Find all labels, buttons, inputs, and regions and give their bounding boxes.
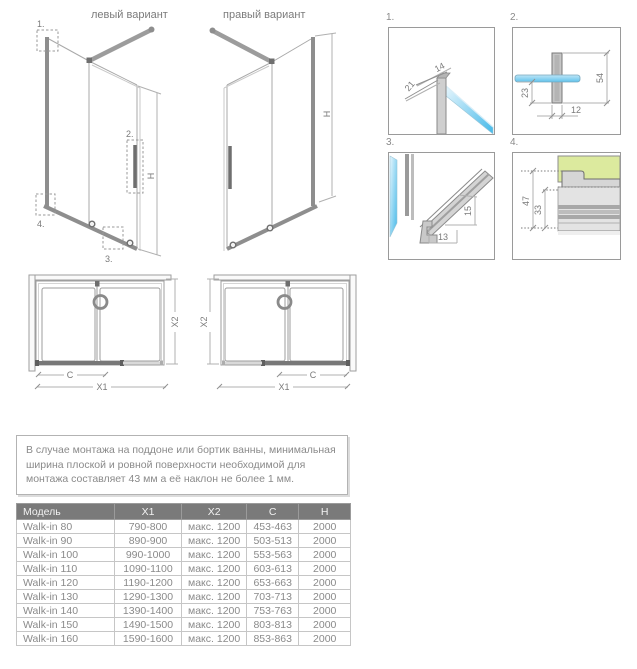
cell-c: 653-663 (247, 576, 299, 590)
dim-47-label: 47 (521, 196, 531, 206)
x1-dim-label: X1 (96, 382, 107, 392)
dim-x1: X1 (35, 382, 168, 392)
roller (267, 225, 273, 231)
detail-4-box: 47 33 (512, 152, 621, 260)
cell-model: Walk-in 160 (17, 632, 115, 646)
col-header-x1: X1 (115, 504, 182, 520)
cell-h: 2000 (299, 590, 351, 604)
detail-2-label: 2. (510, 12, 518, 23)
detail-4-label: 4. (510, 137, 518, 148)
dim-33-label: 33 (533, 205, 543, 215)
dim-54-label: 54 (595, 73, 605, 83)
dim-12: 12 (537, 105, 581, 119)
wall-strip (405, 154, 409, 216)
glass-unit (36, 281, 164, 365)
c-dim-label: C (310, 370, 317, 380)
detail-4-drawing: 47 33 (513, 153, 620, 259)
detail-1-drawing: 14 21 (389, 28, 494, 134)
detail-1-box: 14 21 (388, 27, 495, 135)
detail-1-label: 1. (386, 12, 394, 23)
cell-c: 503-513 (247, 534, 299, 548)
table-row: Walk-in 140 1390-1400 макс. 1200 753-763… (17, 604, 351, 618)
cell-model: Walk-in 150 (17, 618, 115, 632)
h-dim-label: H (146, 173, 156, 180)
cell-model: Walk-in 100 (17, 548, 115, 562)
cell-x2: макс. 1200 (182, 520, 247, 534)
detail-3-drawing: 15 13 (389, 153, 494, 259)
cell-x2: макс. 1200 (182, 618, 247, 632)
cell-x2: макс. 1200 (182, 590, 247, 604)
detail-3-label: 3. (386, 137, 394, 148)
dim-21-label: 21 (403, 79, 417, 93)
dim-x2: X2 (199, 279, 219, 364)
left-variant-glass (49, 39, 140, 251)
cell-model: Walk-in 90 (17, 534, 115, 548)
cell-x2: макс. 1200 (182, 534, 247, 548)
cell-c: 703-713 (247, 590, 299, 604)
callout-2-label: 2. (126, 129, 134, 139)
glass-unit (221, 281, 349, 365)
cell-x2: макс. 1200 (182, 604, 247, 618)
cell-h: 2000 (299, 520, 351, 534)
plan-view-left: C X1 X2 (25, 274, 190, 392)
dim-c: C (277, 370, 349, 380)
cell-h: 2000 (299, 604, 351, 618)
table-row: Walk-in 150 1490-1500 макс. 1200 803-813… (17, 618, 351, 632)
cell-model: Walk-in 110 (17, 562, 115, 576)
cell-model: Walk-in 130 (17, 590, 115, 604)
cell-x1: 1590-1600 (115, 632, 182, 646)
cell-x1: 790-800 (115, 520, 182, 534)
right-variant-glass (224, 39, 311, 251)
table-row: Walk-in 160 1590-1600 макс. 1200 853-863… (17, 632, 351, 646)
dim-23-label: 23 (520, 88, 530, 98)
dim-x1: X1 (217, 382, 350, 392)
wall-top (214, 275, 356, 280)
dim-13-label: 13 (438, 232, 448, 242)
installation-note: В случае монтажа на поддоне или бортик в… (16, 435, 348, 495)
roller (230, 242, 236, 248)
table-row: Walk-in 90 890-900 макс. 1200 503-513 20… (17, 534, 351, 548)
table-row: Walk-in 120 1190-1200 макс. 1200 653-663… (17, 576, 351, 590)
cell-c: 853-863 (247, 632, 299, 646)
col-header-x2: X2 (182, 504, 247, 520)
callout-3-label: 3. (105, 254, 113, 264)
cell-h: 2000 (299, 576, 351, 590)
cell-x1: 1390-1400 (115, 604, 182, 618)
detail-2-box: 54 23 12 (512, 27, 621, 135)
wall-side (350, 275, 356, 371)
dim-12-label: 12 (571, 105, 581, 115)
right-variant-drawing: H (200, 6, 350, 268)
callout-4-label: 4. (37, 219, 45, 229)
cell-h: 2000 (299, 618, 351, 632)
cell-x1: 1090-1100 (115, 562, 182, 576)
support-bar (87, 27, 155, 64)
cell-x2: макс. 1200 (182, 548, 247, 562)
cell-c: 553-563 (247, 548, 299, 562)
wall-side (29, 275, 35, 371)
cell-h: 2000 (299, 562, 351, 576)
roller (89, 221, 95, 227)
cell-model: Walk-in 140 (17, 604, 115, 618)
cell-c: 803-813 (247, 618, 299, 632)
detail-2-drawing: 54 23 12 (513, 28, 620, 134)
cell-x1: 990-1000 (115, 548, 182, 562)
header-row: Модель X1 X2 C H (17, 504, 351, 520)
cell-h: 2000 (299, 534, 351, 548)
cell-model: Walk-in 120 (17, 576, 115, 590)
cell-x1: 1190-1200 (115, 576, 182, 590)
glass-pane (390, 156, 397, 237)
installation-sheet-page: левый вариант правый вариант H (0, 0, 637, 669)
x2-dim-label: X2 (199, 316, 209, 327)
glass-pane (515, 75, 580, 82)
cell-x1: 1490-1500 (115, 618, 182, 632)
cell-x2: макс. 1200 (182, 632, 247, 646)
col-header-model: Модель (17, 504, 115, 520)
table-row: Walk-in 80 790-800 макс. 1200 453-463 20… (17, 520, 351, 534)
table-row: Walk-in 110 1090-1100 макс. 1200 603-613… (17, 562, 351, 576)
wall-profile-section (437, 73, 450, 134)
support-bar (210, 28, 275, 65)
cell-h: 2000 (299, 548, 351, 562)
c-dim-label: C (67, 370, 74, 380)
callout-1-label: 1. (37, 19, 45, 29)
x2-dim-label: X2 (170, 316, 180, 327)
col-header-h: H (299, 504, 351, 520)
table-row: Walk-in 130 1290-1300 макс. 1200 703-713… (17, 590, 351, 604)
detail-3-box: 15 13 (388, 152, 495, 260)
dim-23: 23 (517, 79, 552, 106)
dim-15-label: 15 (463, 206, 473, 216)
h-dimension: H (315, 33, 336, 202)
roller (127, 240, 133, 246)
cell-x2: макс. 1200 (182, 562, 247, 576)
cell-x1: 890-900 (115, 534, 182, 548)
h-dimension: H (138, 86, 161, 256)
dim-33: 33 (533, 187, 548, 231)
cell-c: 453-463 (247, 520, 299, 534)
note-text: В случае монтажа на поддоне или бортик в… (26, 444, 336, 485)
wall-strip (411, 154, 414, 220)
cell-c: 603-613 (247, 562, 299, 576)
table-row: Walk-in 100 990-1000 макс. 1200 553-563 … (17, 548, 351, 562)
rail-layers (558, 187, 620, 235)
wall-top (29, 275, 171, 280)
x1-dim-label: X1 (278, 382, 289, 392)
col-header-c: C (247, 504, 299, 520)
dim-x2: X2 (166, 279, 180, 364)
cell-x1: 1290-1300 (115, 590, 182, 604)
cell-model: Walk-in 80 (17, 520, 115, 534)
cell-c: 753-763 (247, 604, 299, 618)
h-dim-label: H (322, 111, 332, 118)
glass-pane (446, 86, 493, 134)
spec-table: Модель X1 X2 C H Walk-in 80 790-800 макс… (16, 503, 351, 646)
plan-view-right: C X1 X2 (195, 274, 360, 392)
dim-c: C (36, 370, 108, 380)
cell-x2: макс. 1200 (182, 576, 247, 590)
left-variant-drawing: H 1. 2. 3. 4. (15, 6, 185, 268)
dim-47: 47 (521, 168, 536, 231)
cell-h: 2000 (299, 632, 351, 646)
